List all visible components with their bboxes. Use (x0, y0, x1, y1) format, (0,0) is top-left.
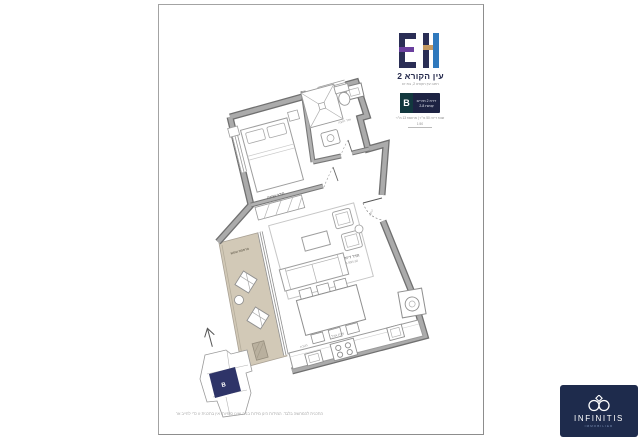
bedroom-door (324, 167, 338, 187)
nightstand (288, 110, 300, 121)
unit-details: דירת 2 חדרים קומות 2-8 (413, 93, 440, 113)
eh-logo (399, 33, 447, 69)
project-title: עין הקורא 2 (393, 71, 448, 81)
entrance-door (363, 198, 382, 220)
brand-name: INFINITIS (574, 414, 624, 423)
key-plan: B (200, 350, 252, 417)
brand-tagline: IMMOBILIER (585, 424, 614, 428)
unit-letter: B (400, 93, 413, 113)
entrance-label: כניסה (368, 208, 374, 216)
screenshot-root: חדר שינה 3.10/3.80 חדר רחצה חדר דיור 3.9… (0, 0, 640, 438)
unit-detail-line2: קומות 2-8 (413, 104, 440, 108)
scale-label: 1:50 (408, 122, 432, 128)
project-header (396, 33, 448, 69)
armchair (332, 208, 354, 229)
bathroom-door (341, 140, 352, 155)
coffee-table (302, 231, 331, 251)
bathroom-sink (320, 129, 340, 147)
infinity-icon (586, 395, 612, 412)
north-arrow-icon (203, 327, 218, 348)
disclaimer: התכנית להמחשה בלבד. המידות הינן מידות בנ… (176, 411, 323, 416)
floor-plan: חדר שינה 3.10/3.80 חדר רחצה חדר דיור 3.9… (0, 0, 640, 438)
balcony-table (235, 296, 244, 305)
washing-machine (398, 288, 426, 318)
side-table (355, 225, 363, 233)
project-subtitle: רחוב עין הקורא 2, בת ים (391, 82, 450, 86)
unit-meta: שטח דירה 50 מ״ר | מרפסת 13 מ״ר (395, 116, 445, 120)
unit-detail-line1: דירת 2 חדרים (413, 99, 440, 103)
unit-badge: B דירת 2 חדרים קומות 2-8 (400, 93, 440, 113)
brand-logo-box: INFINITIS IMMOBILIER (560, 385, 638, 437)
